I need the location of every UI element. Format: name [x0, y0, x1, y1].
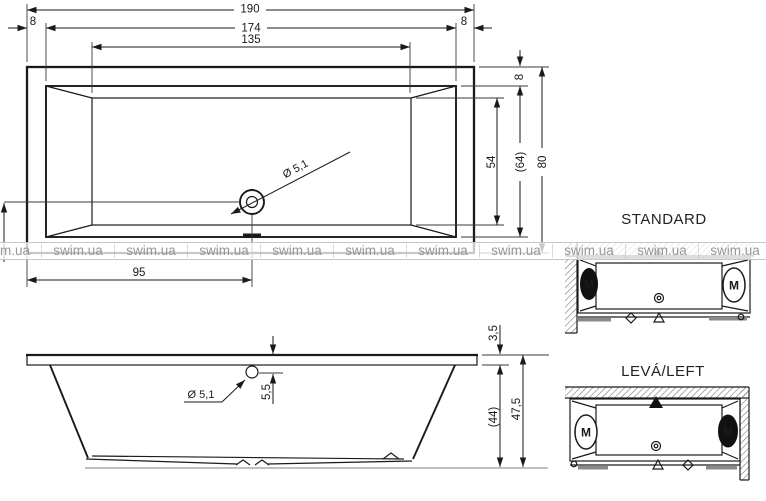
left-variant-diagram: LEVÁ/LEFT M M	[565, 363, 749, 480]
drain-icon-top	[231, 152, 350, 214]
standard-variant-title: STANDARD	[621, 211, 706, 228]
watermark-text: swim.ua	[479, 244, 552, 258]
foot-pad-detail	[383, 453, 399, 459]
watermark-band: m.uaswim.uaswim.uaswim.uaswim.uaswim.uas…	[0, 242, 766, 260]
dim-basin-length-label: 135	[241, 34, 260, 46]
wall-hatch-right	[740, 387, 749, 480]
top-view-outline	[27, 67, 474, 253]
dim-rim-thickness-label: 3,5	[488, 325, 500, 341]
top-view-dimensions: 190 174 135 8 8 95 8 54 (64) 80 Ø 5,1	[8, 2, 549, 280]
dim-rim-right-label: 8	[461, 16, 467, 28]
side-view-dimensions: 5,5 3,5 (44) 47,5	[259, 325, 549, 467]
watermark-text: swim.ua	[406, 244, 479, 258]
watermark-text: swim.ua	[41, 244, 114, 258]
apron-bar	[578, 318, 611, 322]
watermark-text: swim.ua	[625, 244, 698, 258]
dim-inner-width-label: (64)	[515, 152, 527, 173]
side-view: Ø 5,1 5,5 3,5 (44) 47,5	[26, 325, 549, 468]
apron-bar	[578, 466, 608, 470]
motor-label: M	[584, 278, 594, 292]
drain-icon-side: Ø 5,1	[184, 366, 258, 402]
watermark-text: swim.ua	[698, 244, 766, 258]
dim-basin-width-label: 54	[486, 155, 498, 168]
watermark-text: swim.ua	[114, 244, 187, 258]
motor-label: M	[729, 279, 739, 293]
drain-diameter-label-top: Ø 5,1	[281, 158, 310, 181]
dim-drain-below-rim-label: 5,5	[261, 384, 273, 400]
drain-icon-left-variant	[652, 442, 661, 451]
left-variant-title: LEVÁ/LEFT	[621, 363, 705, 380]
dim-inner-depth-label: (44)	[488, 407, 500, 428]
motor-label: M	[581, 426, 591, 440]
watermark-text: m.ua	[0, 244, 41, 258]
corner-fitting-icon	[571, 461, 577, 467]
motor-label: M	[723, 425, 733, 439]
drain-trap-detail	[255, 460, 269, 465]
standard-variant-diagram: STANDARD M M	[565, 211, 754, 333]
dim-rim-left-label: 8	[30, 16, 36, 28]
drain-diameter-label-side: Ø 5,1	[188, 389, 215, 401]
dim-total-width-label: 80	[537, 156, 549, 169]
dim-rim-top-label: 8	[514, 74, 526, 80]
side-view-outline	[26, 355, 548, 468]
watermark-text: swim.ua	[552, 244, 625, 258]
technical-drawing-page: 190 174 135 8 8 95 8 54 (64) 80 Ø 5,1	[0, 0, 766, 501]
wall-hatch-top	[565, 387, 749, 398]
watermark-text: swim.ua	[187, 244, 260, 258]
drain-icon-standard	[655, 294, 664, 303]
dim-drain-offset-label: 95	[133, 267, 146, 279]
watermark-text: swim.ua	[333, 244, 406, 258]
diamond-symbol	[626, 313, 636, 323]
drain-trap-detail	[236, 460, 250, 465]
dim-total-length-label: 190	[240, 4, 259, 16]
dim-inner-length-label: 174	[241, 23, 261, 35]
dim-total-height-label: 47,5	[511, 398, 523, 420]
watermark-text: swim.ua	[260, 244, 333, 258]
apron-bar	[706, 466, 737, 470]
